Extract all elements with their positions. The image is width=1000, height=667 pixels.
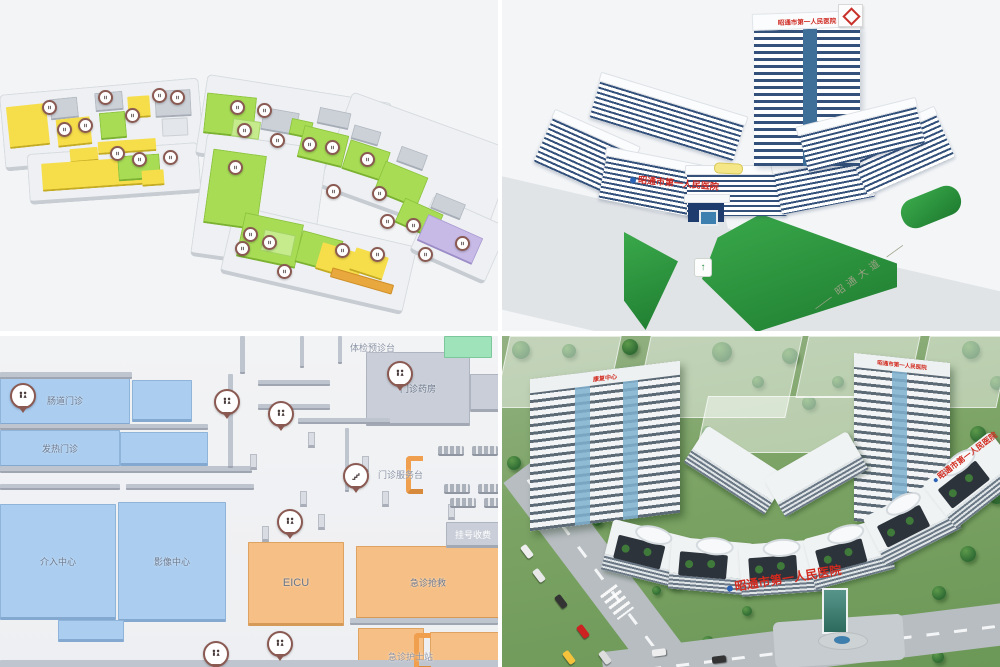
entrance-door [699,210,718,226]
escalator-pin[interactable] [455,236,470,251]
room-门诊药房[interactable]: 门诊药房 [366,352,470,426]
escalator-pin[interactable] [270,133,285,148]
room[interactable] [444,336,492,358]
hospital-logo-icon [933,477,939,483]
room[interactable] [470,374,498,412]
room-label: EICU [283,577,309,589]
restroom-pin[interactable] [326,184,341,199]
restroom-pin[interactable] [125,108,140,123]
escalator-pin[interactable] [343,463,369,489]
escalator-pin[interactable] [277,264,292,279]
courtyard-tree [963,472,974,483]
waiting-chairs [444,484,470,494]
podium-segment [684,425,788,514]
courtyard-tree [947,488,958,499]
escalator-pin[interactable] [235,241,250,256]
room-急诊抢救[interactable]: 急诊抢救 [356,546,498,620]
quadrant-3d-model[interactable]: 昭通市第一人民医院 昭通市第一人民医院 ↑ ——昭通大道—— [502,0,1000,331]
wall [300,336,304,368]
escalator-pin[interactable] [42,100,57,115]
department-badge [714,162,744,175]
fountain-water [834,636,850,644]
podium-floor-stripes [777,455,868,517]
room-label: 急诊抢救 [410,576,446,589]
pillar [300,491,307,507]
room[interactable] [58,620,124,642]
wall [258,380,330,386]
restroom-pin[interactable] [277,509,303,535]
pillar [262,526,269,542]
hospital-logo-icon [726,585,733,592]
wall [240,336,245,374]
courtyard-tree [621,544,631,554]
escalator-pin[interactable] [418,247,433,262]
room-label: 影像中心 [154,555,190,568]
wall [338,336,342,364]
wall [126,484,254,490]
room[interactable] [132,380,192,422]
escalator-pin[interactable] [78,118,93,133]
wall [0,466,252,473]
courtyard [678,551,728,579]
lawn-right [897,181,966,232]
quadrant-indoor-map[interactable]: 肠道门诊发热门诊介入中心影像中心EICU急诊抢救挂号收费门诊药房体检预诊台门诊服… [0,336,498,667]
room[interactable] [141,169,164,186]
restroom-pin[interactable] [228,160,243,175]
escalator-pin[interactable] [110,146,125,161]
room-label: 发热门诊 [42,442,78,455]
hospital-logo-icon [630,177,637,184]
wall [298,418,390,424]
room[interactable] [162,117,189,136]
courtyard-tree [707,560,716,569]
restroom-pin[interactable] [372,186,387,201]
podium-segment [763,431,868,517]
up-arrow-icon: ↑ [701,262,706,273]
wall [0,372,132,379]
entrance-arrow-sign: ↑ [694,258,712,277]
pillar [382,491,389,507]
restroom-pin[interactable] [268,401,294,427]
restroom-pin[interactable] [387,361,413,387]
waiting-chairs [478,484,498,494]
courtyard-tree [886,527,897,538]
waiting-chairs [484,498,498,508]
escalator-pin[interactable] [257,103,272,118]
road-dash: —— [883,241,906,262]
restroom-pin[interactable] [10,383,36,409]
restroom-pin[interactable] [267,631,293,657]
restroom-pin[interactable] [203,641,229,667]
room-挂号收费[interactable]: 挂号收费 [446,522,498,548]
wall [0,424,208,430]
podium-layer [502,336,1000,667]
restroom-pin[interactable] [237,123,252,138]
escalator-pin[interactable] [262,235,277,250]
restroom-pin[interactable] [214,389,240,415]
escalator-pin[interactable] [380,214,395,229]
hospital-logo-cube [838,4,863,27]
room[interactable] [99,111,127,140]
escalator-pin[interactable] [230,100,245,115]
courtyard-tree [904,515,915,526]
escalator-pin[interactable] [360,152,375,167]
entrance-glass-tower [822,588,848,634]
pillar [250,454,257,470]
room-EICU[interactable]: EICU [248,542,344,626]
wall [0,484,120,490]
room-label: 挂号收费 [455,528,491,541]
floorplan-scene [0,0,498,331]
courtyard-tree [685,560,694,569]
hospital-map-collage: 昭通市第一人民医院 昭通市第一人民医院 ↑ ——昭通大道—— 肠道门诊发热门诊介… [0,0,1000,667]
indoor-scene: 肠道门诊发热门诊介入中心影像中心EICU急诊抢救挂号收费门诊药房体检预诊台门诊服… [0,336,498,667]
room-label: 介入中心 [40,555,76,568]
escalator-pin[interactable] [98,90,113,105]
waiting-chairs [438,446,464,456]
restroom-pin[interactable] [170,90,185,105]
area-label: 门诊服务台 [378,468,423,481]
escalator-pin[interactable] [152,88,167,103]
area-label: 急诊护士站 [388,650,433,663]
restroom-pin[interactable] [335,243,350,258]
escalator-pin[interactable] [325,140,340,155]
room-介入中心[interactable]: 介入中心 [0,504,116,620]
waiting-chairs [450,498,476,508]
courtyard-tree [844,547,854,557]
quadrant-aerial-rendering[interactable]: 康复中心 昭通市第一人民医院 昭通市第一人民医院 昭通市第一人民医院 [502,336,1000,667]
podium-floor-stripes [684,449,773,515]
room-发热门诊[interactable]: 发热门诊 [0,430,120,468]
quadrant-floorplan-overview[interactable] [0,0,498,331]
restroom-pin[interactable] [163,150,178,165]
courtyard-tree [643,547,653,557]
area-label: 体检预诊台 [350,341,395,354]
wall [350,618,498,625]
pillar [318,514,325,530]
pillar [308,432,315,448]
escalator-pin[interactable] [302,137,317,152]
restroom-pin[interactable] [406,218,421,233]
restroom-pin[interactable] [132,152,147,167]
entrance-canopy [684,194,730,203]
room-影像中心[interactable]: 影像中心 [118,502,226,622]
room-label: 肠道门诊 [47,394,83,407]
restroom-pin[interactable] [57,122,72,137]
restroom-pin[interactable] [370,247,385,262]
room[interactable] [120,432,208,466]
waiting-chairs [472,446,498,456]
restroom-pin[interactable] [243,227,258,242]
tower-sign-text: 昭通市第一人民医院 [778,14,837,26]
